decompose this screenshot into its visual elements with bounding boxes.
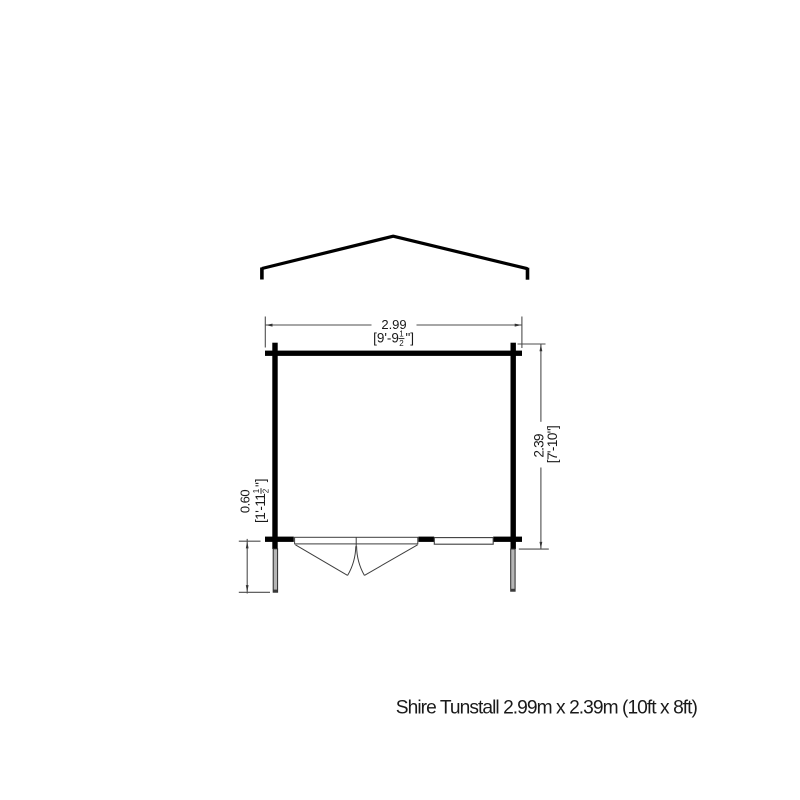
svg-text:0.60: 0.60 bbox=[238, 490, 253, 514]
svg-text:[1'-11: [1'-11 bbox=[253, 494, 268, 523]
svg-text:2: 2 bbox=[261, 488, 270, 493]
svg-text:2: 2 bbox=[399, 339, 404, 348]
svg-text:1: 1 bbox=[252, 488, 261, 493]
svg-text:Shire Tunstall 2.99m x 2.39m (: Shire Tunstall 2.99m x 2.39m (10ft x 8ft… bbox=[396, 697, 698, 718]
svg-text:[9'-9: [9'-9 bbox=[373, 330, 399, 345]
svg-text:1: 1 bbox=[399, 330, 404, 339]
svg-text:[7'-10"]: [7'-10"] bbox=[545, 426, 560, 464]
svg-text:"]: "] bbox=[253, 478, 268, 487]
svg-text:"]: "] bbox=[406, 330, 415, 345]
